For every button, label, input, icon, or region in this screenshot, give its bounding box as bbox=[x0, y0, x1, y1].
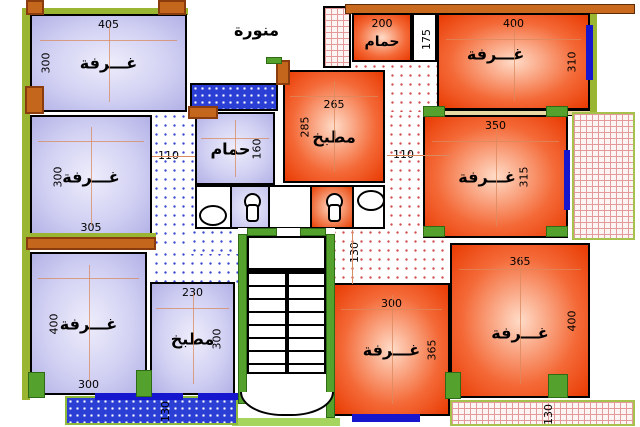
column bbox=[26, 0, 44, 15]
stair-top-beam-right bbox=[300, 228, 326, 236]
dim-width: 300 bbox=[335, 297, 448, 310]
column-green bbox=[423, 106, 445, 117]
window bbox=[586, 25, 593, 80]
bathroom-top-right: 200 حمام bbox=[352, 13, 412, 62]
kitchen-top: 265 285 مطبخ bbox=[283, 70, 385, 183]
column-green bbox=[423, 226, 445, 237]
bathroom-label: حمام bbox=[365, 34, 400, 50]
toilet-icon bbox=[325, 193, 341, 220]
stair-curved-landing bbox=[240, 392, 334, 416]
wc-cell-2 bbox=[230, 185, 270, 229]
dim-height: 310 bbox=[566, 42, 579, 82]
column-green bbox=[445, 372, 461, 399]
basin-icon bbox=[199, 205, 227, 226]
wc-cell-4 bbox=[310, 185, 354, 229]
window bbox=[352, 414, 420, 422]
wc-cell-5 bbox=[352, 185, 385, 229]
dim-height: 400 bbox=[48, 304, 61, 344]
window bbox=[564, 150, 570, 210]
stair-treads-right bbox=[287, 270, 326, 374]
balcony-dim: 130 bbox=[542, 404, 555, 425]
dim-height: 400 bbox=[566, 301, 579, 341]
room-top-right: 400 310 غـــرفة bbox=[437, 13, 590, 110]
dim-width: 230 bbox=[152, 286, 233, 299]
dim-width: 300 bbox=[32, 378, 145, 391]
shaft-top-hatch bbox=[323, 6, 351, 68]
room-bottom-right: 365 400 غـــرفة bbox=[450, 243, 590, 398]
kitchen-label: مطبخ bbox=[171, 329, 215, 348]
stair-threshold bbox=[232, 418, 340, 426]
duct-shaft: 175 bbox=[412, 13, 437, 62]
bathroom-label: حمام bbox=[210, 139, 250, 158]
balcony-bottom-left: 130 bbox=[65, 396, 238, 425]
column-green bbox=[136, 370, 152, 397]
wall-thick-orange bbox=[26, 237, 156, 250]
column-green bbox=[546, 226, 568, 237]
dim-width: 350 bbox=[425, 119, 566, 132]
floor-plan: منورة 405 300 غـــرفة 300 305 غـــرفة 40… bbox=[0, 0, 640, 427]
room-label: غـــرفة bbox=[458, 167, 515, 186]
wc-cell-3 bbox=[268, 185, 312, 229]
column-green bbox=[28, 372, 45, 398]
room-label: غـــرفة bbox=[467, 45, 524, 64]
dim-width: 400 bbox=[439, 17, 588, 30]
dim-height: 285 bbox=[299, 107, 312, 147]
balcony-right bbox=[572, 112, 635, 240]
dim-width: 200 bbox=[354, 17, 410, 30]
dim-line bbox=[152, 156, 195, 157]
balcony-dim: 130 bbox=[159, 401, 172, 422]
room-label: غـــرفة bbox=[363, 340, 420, 359]
column-green bbox=[266, 57, 282, 64]
dim-height: 365 bbox=[426, 330, 439, 370]
kitchen-bottom: 230 300 مطبخ bbox=[150, 282, 235, 395]
dim-line bbox=[352, 230, 353, 284]
room-bottom-mid: 300 365 غـــرفة bbox=[333, 283, 450, 416]
balcony-bottom-right: 130 bbox=[450, 400, 635, 426]
room-label: غـــرفة bbox=[80, 54, 137, 73]
stair-top-beam-left bbox=[247, 228, 277, 236]
outer-wall-left bbox=[22, 8, 30, 400]
lightwell-label: منورة bbox=[234, 21, 279, 40]
column bbox=[25, 86, 44, 114]
staircase bbox=[238, 228, 335, 418]
column bbox=[188, 106, 218, 119]
dim-height: 160 bbox=[251, 129, 264, 169]
toilet-icon bbox=[243, 193, 259, 220]
stair-column-left bbox=[238, 234, 247, 404]
dim-width: 405 bbox=[32, 18, 185, 31]
basin-icon bbox=[357, 190, 385, 211]
room-top-left: 405 300 غـــرفة bbox=[30, 14, 187, 112]
room-label: غـــرفة bbox=[60, 314, 117, 333]
room-bottom-left: 400 300 غـــرفة bbox=[30, 252, 147, 395]
room-mid-left: 300 305 غـــرفة bbox=[30, 115, 152, 238]
wc-cell-1 bbox=[195, 185, 232, 229]
dim-height: 175 bbox=[420, 29, 433, 50]
column-green bbox=[546, 106, 568, 117]
stair-landing-top bbox=[247, 236, 326, 270]
corridor-dim-right-vertical: 130 bbox=[348, 242, 361, 263]
kitchen-label: مطبخ bbox=[312, 128, 356, 147]
stair-column-right bbox=[326, 234, 335, 418]
room-label: غـــرفة bbox=[62, 167, 119, 186]
column bbox=[158, 0, 186, 15]
bathroom-mid: 160 حمام bbox=[195, 112, 275, 185]
stair-treads-left bbox=[247, 270, 287, 374]
dim-width: 365 bbox=[452, 255, 588, 268]
dim-height: 315 bbox=[518, 157, 531, 197]
corridor-hatch-left-lower bbox=[152, 250, 238, 284]
dim-height: 300 bbox=[40, 43, 53, 83]
column-green bbox=[548, 374, 568, 398]
room-mid-right: 350 315 غـــرفة bbox=[423, 115, 568, 238]
corridor-hatch-left-landing bbox=[190, 228, 238, 254]
room-label: غـــرفة bbox=[491, 323, 548, 342]
window bbox=[198, 393, 238, 400]
dim-line bbox=[387, 155, 450, 156]
